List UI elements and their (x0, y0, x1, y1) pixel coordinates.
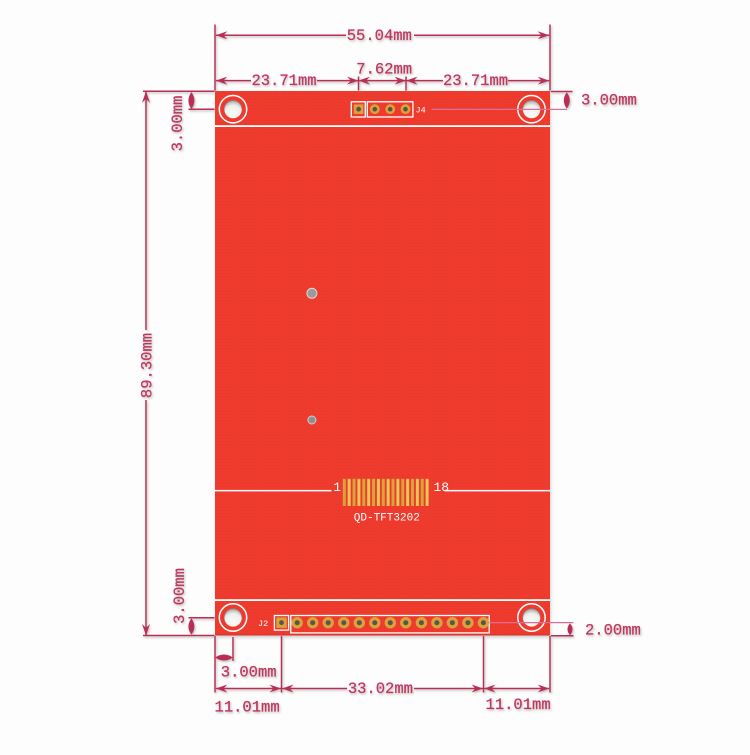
svg-text:QD-TFT3202: QD-TFT3202 (354, 513, 420, 525)
svg-text:3.00mm: 3.00mm (581, 92, 637, 110)
svg-text:J2: J2 (258, 619, 268, 629)
svg-text:89.30mm: 89.30mm (139, 333, 157, 398)
svg-text:11.01mm: 11.01mm (486, 696, 551, 714)
svg-text:3.00mm: 3.00mm (169, 96, 187, 152)
svg-text:1: 1 (333, 480, 341, 495)
svg-text:7.62mm: 7.62mm (356, 61, 412, 79)
svg-text:3.00mm: 3.00mm (221, 664, 277, 682)
svg-text:3.00mm: 3.00mm (171, 568, 189, 624)
svg-text:18: 18 (434, 480, 450, 495)
svg-text:33.02mm: 33.02mm (348, 680, 413, 698)
svg-text:J4: J4 (416, 105, 426, 115)
svg-text:23.71mm: 23.71mm (443, 72, 508, 90)
svg-text:11.01mm: 11.01mm (215, 699, 280, 717)
svg-text:2.00mm: 2.00mm (585, 621, 641, 639)
svg-text:23.71mm: 23.71mm (251, 72, 316, 90)
svg-text:55.04mm: 55.04mm (347, 27, 412, 45)
